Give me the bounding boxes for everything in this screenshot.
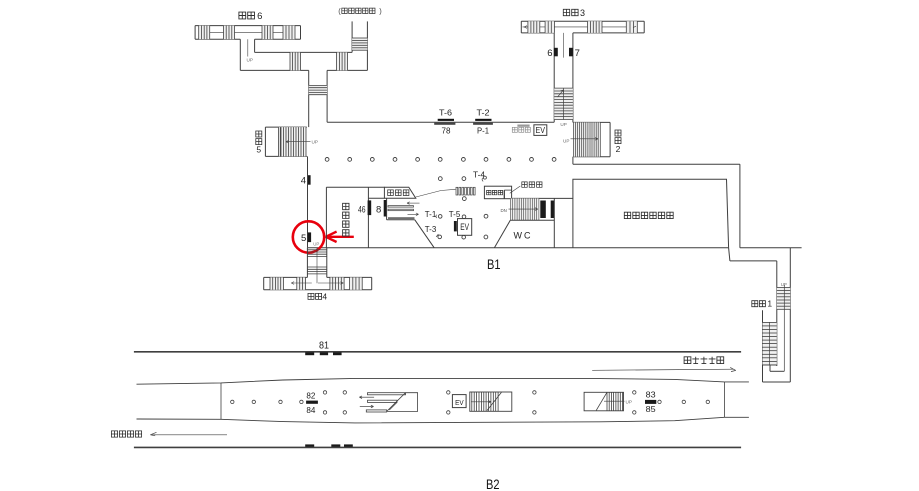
svg-text:4: 4 <box>322 291 327 301</box>
svg-text:5: 5 <box>256 144 261 154</box>
svg-text:UP: UP <box>247 58 253 63</box>
svg-text:T-6: T-6 <box>439 109 453 118</box>
svg-text:UP: UP <box>560 122 566 127</box>
svg-text:46: 46 <box>358 204 366 215</box>
svg-text:T-1: T-1 <box>425 210 437 219</box>
svg-text:83: 83 <box>646 390 656 400</box>
svg-text:7: 7 <box>575 48 580 59</box>
svg-text:6: 6 <box>257 11 262 22</box>
svg-text:UP: UP <box>313 241 319 246</box>
svg-text:UP: UP <box>563 139 569 144</box>
svg-text:UP: UP <box>781 282 787 287</box>
svg-text:T-3: T-3 <box>425 225 437 234</box>
svg-text:3: 3 <box>580 8 585 18</box>
svg-text:8: 8 <box>376 204 381 215</box>
svg-text:81: 81 <box>319 340 329 351</box>
svg-text:EV: EV <box>455 398 464 407</box>
svg-text:5: 5 <box>301 233 306 244</box>
svg-text:T-2: T-2 <box>477 109 491 118</box>
svg-text:WC: WC <box>514 231 533 241</box>
svg-text:UP: UP <box>626 399 632 404</box>
svg-text:2: 2 <box>616 144 621 154</box>
svg-text:EV: EV <box>536 126 546 135</box>
svg-text:6: 6 <box>547 48 552 59</box>
svg-text:4: 4 <box>301 176 306 187</box>
svg-text:P-1: P-1 <box>477 126 489 136</box>
svg-text:DN: DN <box>501 208 507 213</box>
svg-text:85: 85 <box>646 404 656 414</box>
svg-text:78: 78 <box>442 126 451 136</box>
svg-text:84: 84 <box>306 405 315 415</box>
svg-text:82: 82 <box>306 390 315 400</box>
svg-text:T-5: T-5 <box>449 210 461 219</box>
svg-text:B1: B1 <box>487 257 501 272</box>
svg-text:EV: EV <box>460 222 469 232</box>
svg-text:UP: UP <box>312 140 318 145</box>
svg-text:B2: B2 <box>486 477 500 491</box>
svg-text:1: 1 <box>767 299 772 309</box>
